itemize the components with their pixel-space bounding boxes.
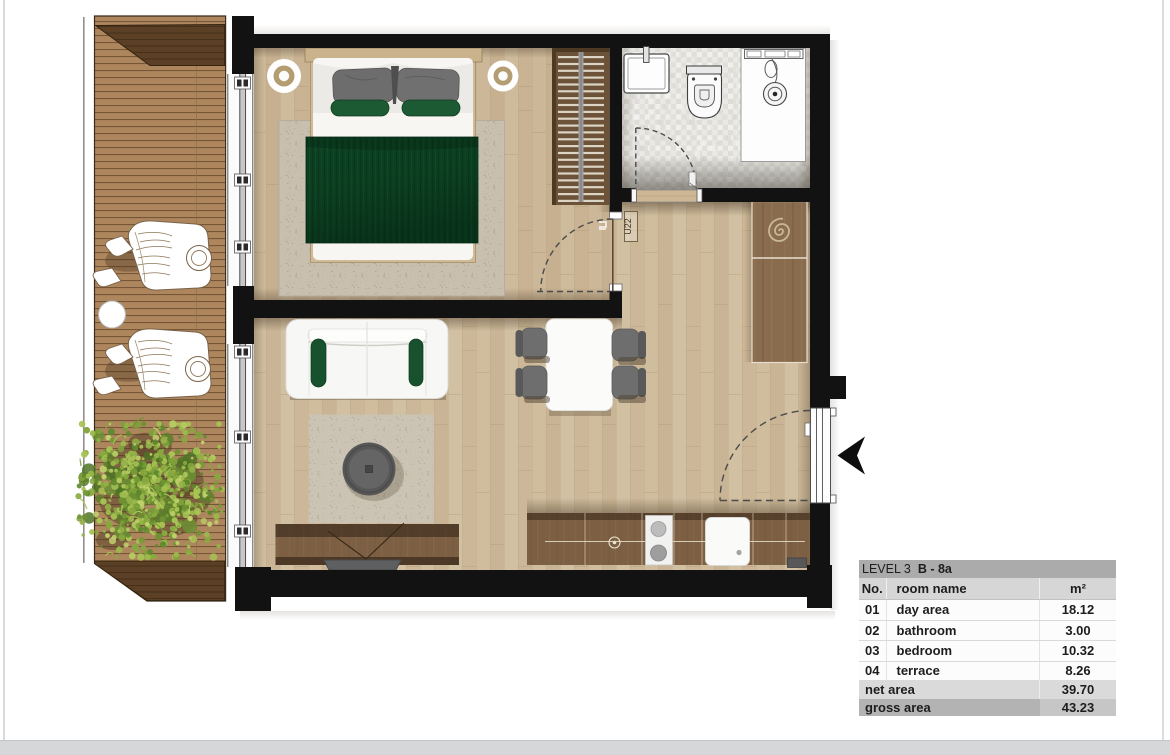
svg-text:U22: U22 bbox=[623, 218, 633, 235]
